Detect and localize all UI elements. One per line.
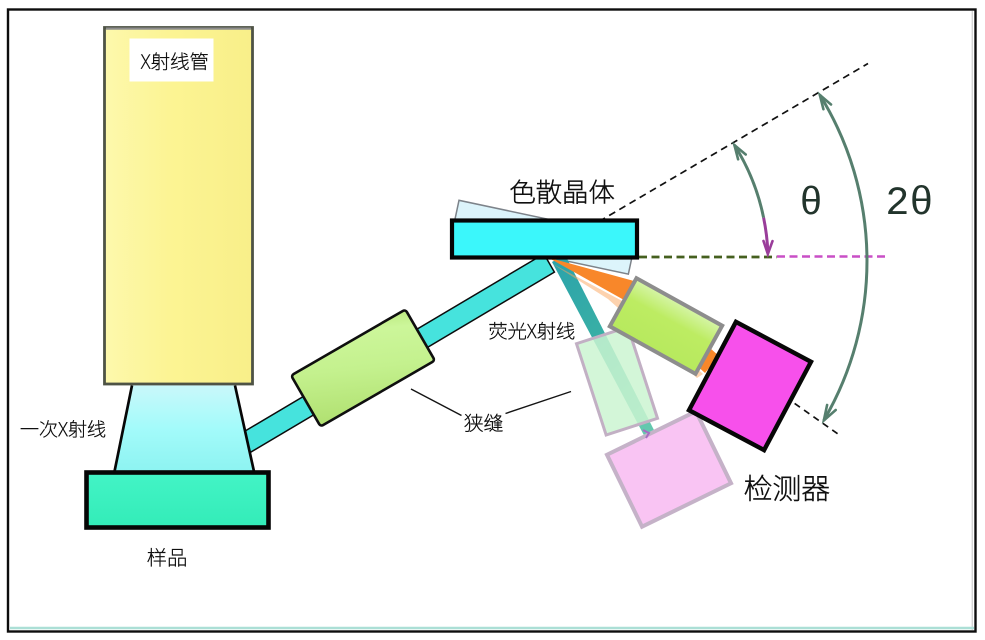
- svg-text:2θ: 2θ: [885, 182, 933, 227]
- svg-text:θ: θ: [800, 182, 823, 226]
